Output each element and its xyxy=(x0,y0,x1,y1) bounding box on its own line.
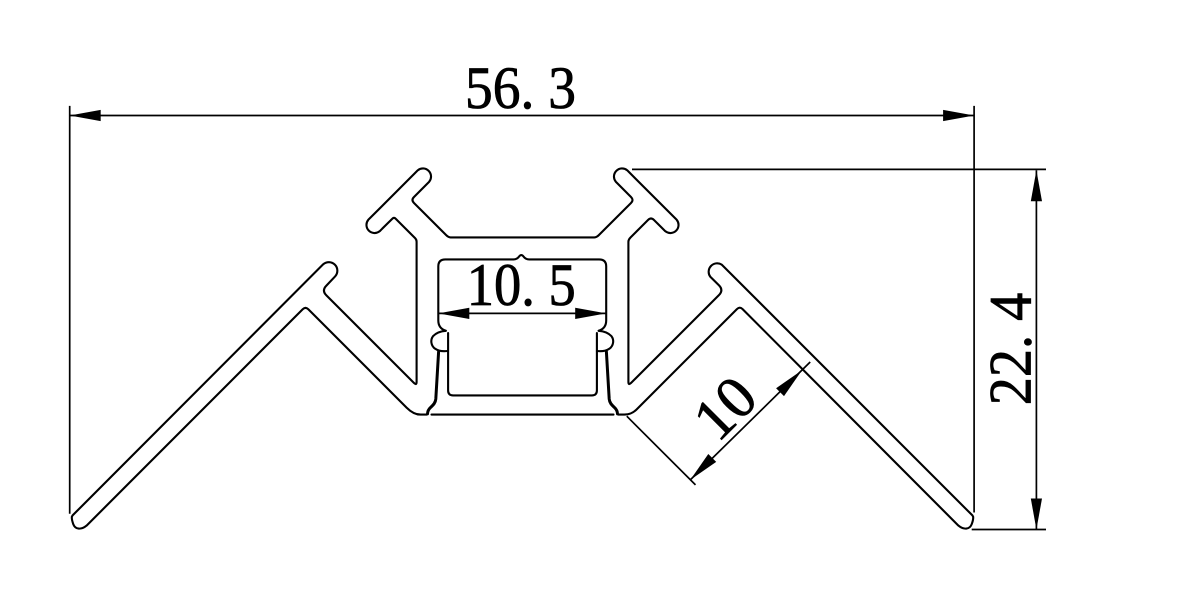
svg-text:22. 4: 22. 4 xyxy=(978,293,1044,406)
svg-text:56. 3: 56. 3 xyxy=(465,55,576,121)
svg-text:10. 5: 10. 5 xyxy=(467,252,576,318)
